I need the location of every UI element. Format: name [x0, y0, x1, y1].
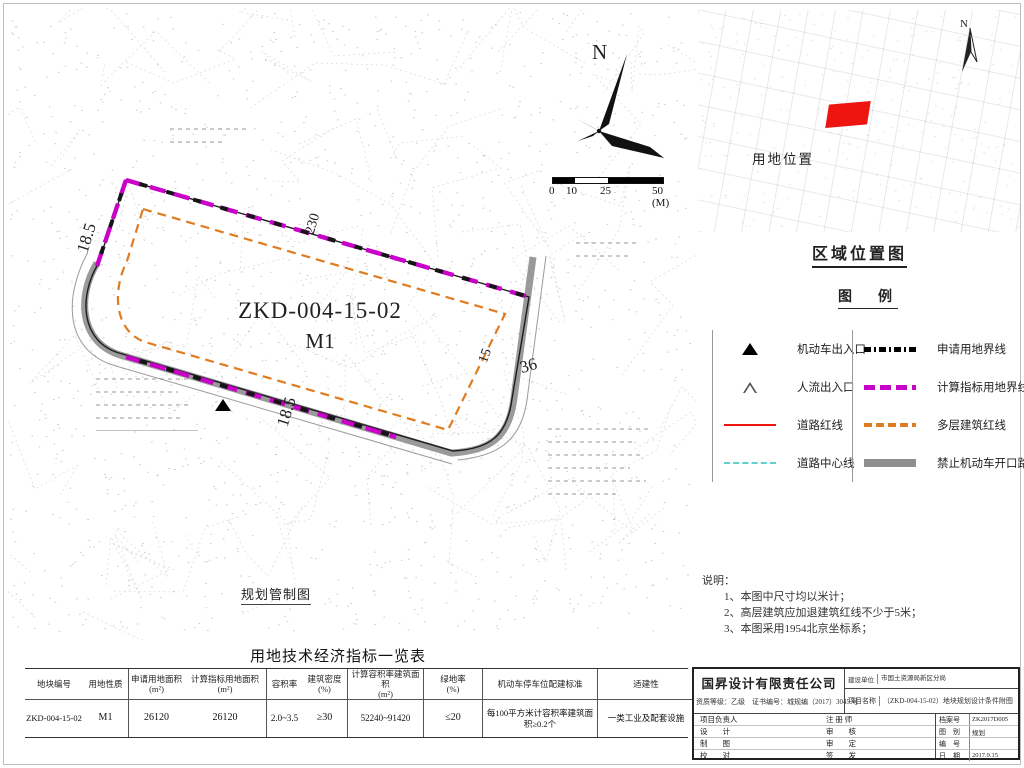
notes-title: 说明：	[702, 573, 1017, 589]
scale-tick-10: 10	[566, 185, 577, 197]
illegible-annotation	[170, 128, 250, 154]
legend-item-building-red-line: 多层建筑红线	[852, 406, 1020, 444]
legend-item-no-vehicle-opening: 禁止机动车开口路段	[852, 444, 1020, 482]
legend-label: 道路中心线	[787, 455, 855, 471]
table-column: 用地性质 M1	[83, 669, 128, 737]
table-cell: 52240~91420	[348, 700, 423, 737]
building-red-line-icon	[864, 423, 916, 427]
role-row: 制 图 审 定	[694, 738, 935, 750]
scale-tick-50: 50 (M)	[652, 185, 669, 209]
project-label: 项目名称	[845, 696, 880, 706]
legend-item-road-red-line: 道路红线	[712, 406, 862, 444]
role-row: 校 对 签 发	[694, 750, 935, 761]
legend-item-indicator-boundary: 计算指标用地界线	[852, 368, 1020, 406]
indicator-boundary-icon	[864, 385, 916, 390]
drawing-sheet: ZKD-004-15-02 M1 18.5 230 18.5 15 36 N 0…	[0, 0, 1024, 768]
inset-north-label: N	[960, 18, 968, 30]
legend-right-column: 申请用地界线 计算指标用地界线 多层建筑红线 禁止机动车开口路段	[852, 330, 1020, 482]
roles-grid: 项目负责人 注 册 师 设 计 审 核 制 图 审 定 校 对 签 发	[694, 713, 935, 758]
info-row: 编 号	[936, 738, 1018, 750]
info-row: 图 别 规划	[936, 726, 1018, 738]
plot-code-label: ZKD-004-15-02	[205, 298, 435, 324]
road-center-line-icon	[724, 462, 776, 464]
table-column: 地块编号 ZKD-004-15-02	[25, 669, 83, 737]
legend-label: 道路红线	[787, 417, 843, 433]
table-column: 容积率 2.0~3.5	[266, 669, 302, 737]
company-name: 国昇设计有限责任公司	[694, 669, 844, 695]
legend-label: 禁止机动车开口路段	[927, 455, 1024, 471]
client-value: 市国土资源局新区分局	[878, 675, 946, 683]
no-vehicle-opening-icon	[864, 459, 916, 467]
inset-plot-highlight	[825, 101, 871, 128]
pedestrian-entrance-icon	[743, 382, 757, 393]
inset-title: 用地位置	[752, 148, 814, 168]
vehicle-entrance-icon	[742, 343, 758, 355]
table-cell: 每100平方米计容积率建筑面积≥0.2个	[483, 700, 597, 737]
legend-label: 申请用地界线	[927, 341, 1006, 357]
note-item: 1、本图中尺寸均以米计；	[724, 589, 1017, 605]
drawing-info-grid: 档案号 ZK2017D005 图 别 规划 编 号 日 期 2017.9.15	[935, 713, 1018, 758]
legend-item-vehicle-entrance: 机动车出入口	[712, 330, 862, 368]
table-column: 建筑密度(%) ≥30	[302, 669, 347, 737]
legend-item-applied-boundary: 申请用地界线	[852, 330, 1020, 368]
legend-item-pedestrian-entrance: 人流出入口	[712, 368, 862, 406]
location-inset-map: 用地位置 N	[698, 10, 1020, 232]
table-title: 用地技术经济指标一览表	[250, 645, 426, 666]
table-cell: ZKD-004-15-02	[25, 700, 83, 737]
table-column: 申请用地面积(m²) 26120	[128, 669, 184, 737]
legend-item-road-center-line: 道路中心线	[712, 444, 862, 482]
client-cell: 建设单位 市国土资源局新区分局	[844, 669, 1018, 689]
table-column: 计算容积率建筑面积(m²) 52240~91420	[347, 669, 423, 737]
table-cell: ≥30	[302, 700, 347, 737]
note-item: 3、本图采用1954北京坐标系；	[724, 621, 1017, 637]
table-cell: 一类工业及配套设施	[598, 700, 694, 737]
table-cell: ≤20	[424, 700, 482, 737]
client-label: 建设单位	[845, 674, 878, 684]
illegible-annotation	[96, 378, 198, 442]
indicators-table: 地块编号 ZKD-004-15-02 用地性质 M1 申请用地面积(m²) 26…	[25, 668, 688, 738]
title-block: 国昇设计有限责任公司 资质等级：乙级 证书编号：城规编（2017）3045 号 …	[692, 667, 1020, 760]
applied-boundary-icon	[864, 347, 916, 352]
vehicle-entrance-marker	[215, 399, 231, 411]
plot-use-label: M1	[205, 329, 435, 354]
project-value: （ZKD-004-15-02）地块规划设计条件附图	[880, 697, 1013, 706]
table-column: 适建性 一类工业及配套设施	[597, 669, 694, 737]
table-cell: 2.0~3.5	[267, 700, 302, 737]
illegible-annotation	[576, 242, 638, 268]
project-cell: 项目名称 （ZKD-004-15-02）地块规划设计条件附图	[844, 689, 1018, 713]
legend-label: 计算指标用地界线	[927, 379, 1024, 395]
table-cell: 26120	[184, 700, 266, 737]
north-arrow	[575, 54, 664, 158]
scale-bar: 0 10 25 50 (M)	[552, 177, 664, 198]
scale-tick-0: 0	[549, 185, 555, 197]
notes: 说明： 1、本图中尺寸均以米计； 2、高层建筑应加退建筑红线不少于5米； 3、本…	[702, 573, 1017, 637]
legend-label: 多层建筑红线	[927, 417, 1006, 433]
topo-noise-lines	[0, 0, 727, 648]
info-row: 档案号 ZK2017D005	[936, 714, 1018, 726]
illegible-annotation	[548, 428, 653, 506]
map-caption: 规划管制图	[241, 584, 311, 605]
role-row: 设 计 审 核	[694, 726, 935, 738]
info-row: 日 期 2017.9.15	[936, 750, 1018, 761]
legend-label: 人流出入口	[787, 379, 855, 395]
table-column: 绿地率(%) ≤20	[423, 669, 482, 737]
table-column: 计算指标用地面积(m²) 26120	[184, 669, 266, 737]
note-item: 2、高层建筑应加退建筑红线不少于5米；	[724, 605, 1017, 621]
scale-tick-25: 25	[600, 185, 611, 197]
table-cell: M1	[83, 700, 128, 737]
north-label: N	[592, 40, 607, 65]
table-cell: 26120	[129, 700, 184, 737]
table-column: 机动车停车位配建标准 每100平方米计容积率建筑面积≥0.2个	[482, 669, 597, 737]
legend-left-column: 机动车出入口 人流出入口 道路红线 道路中心线	[712, 330, 862, 482]
road-red-line-icon	[724, 424, 776, 426]
region-map-title: 区域位置图	[812, 240, 907, 268]
role-row: 项目负责人 注 册 师	[694, 714, 935, 726]
legend-title: 图 例	[838, 286, 898, 309]
